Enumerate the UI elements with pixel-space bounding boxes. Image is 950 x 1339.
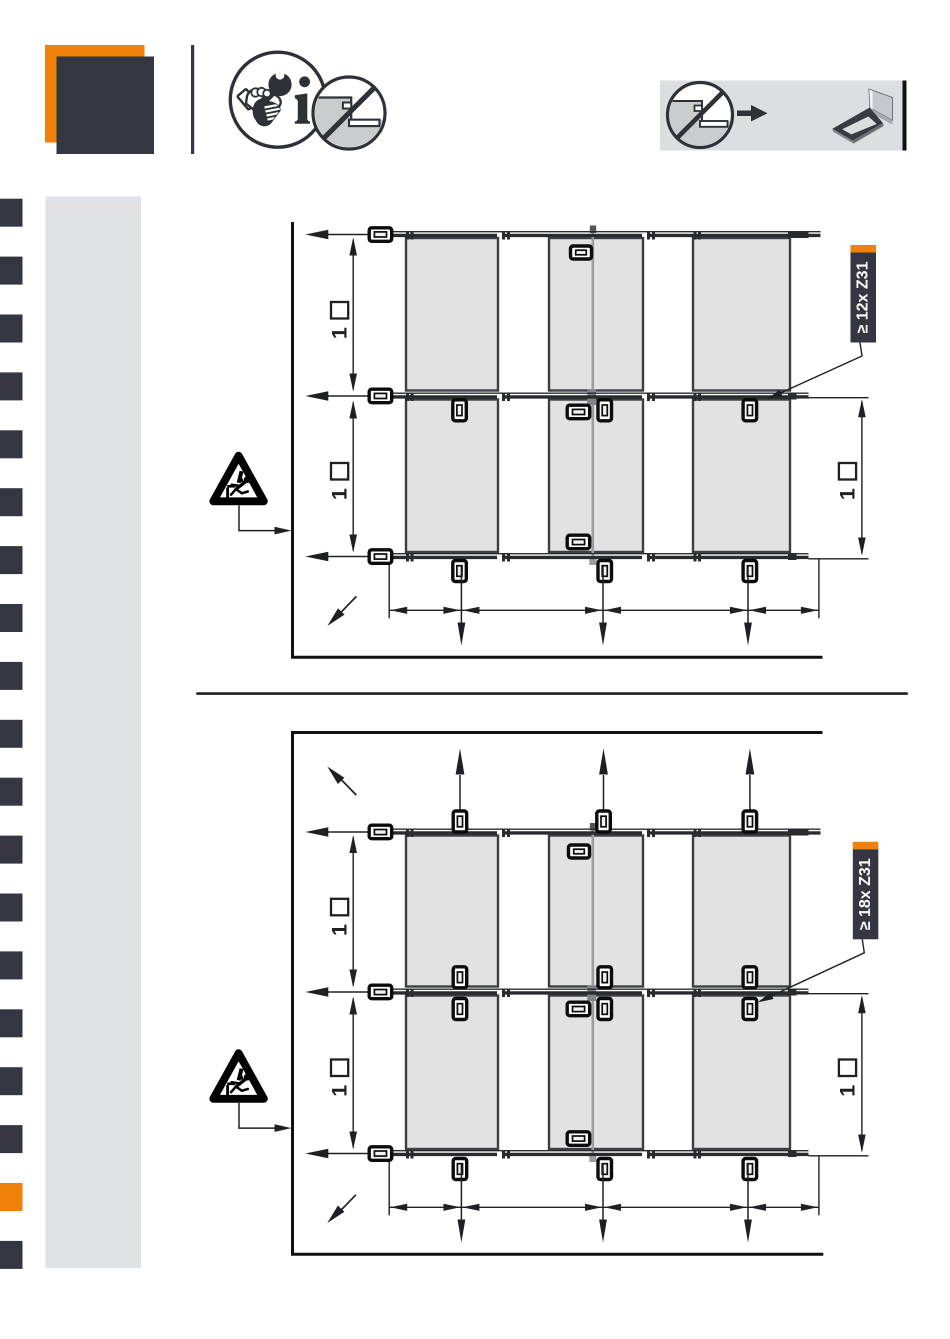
svg-text:1: 1: [328, 488, 352, 500]
svg-text:1: 1: [328, 924, 352, 936]
svg-text:1: 1: [328, 1085, 352, 1097]
svg-text:1: 1: [836, 1085, 860, 1097]
svg-text:≥ 18x Z31: ≥ 18x Z31: [857, 858, 874, 930]
svg-text:1: 1: [836, 488, 860, 500]
svg-text:≥ 12x Z31: ≥ 12x Z31: [855, 261, 872, 333]
svg-text:1: 1: [328, 327, 352, 339]
